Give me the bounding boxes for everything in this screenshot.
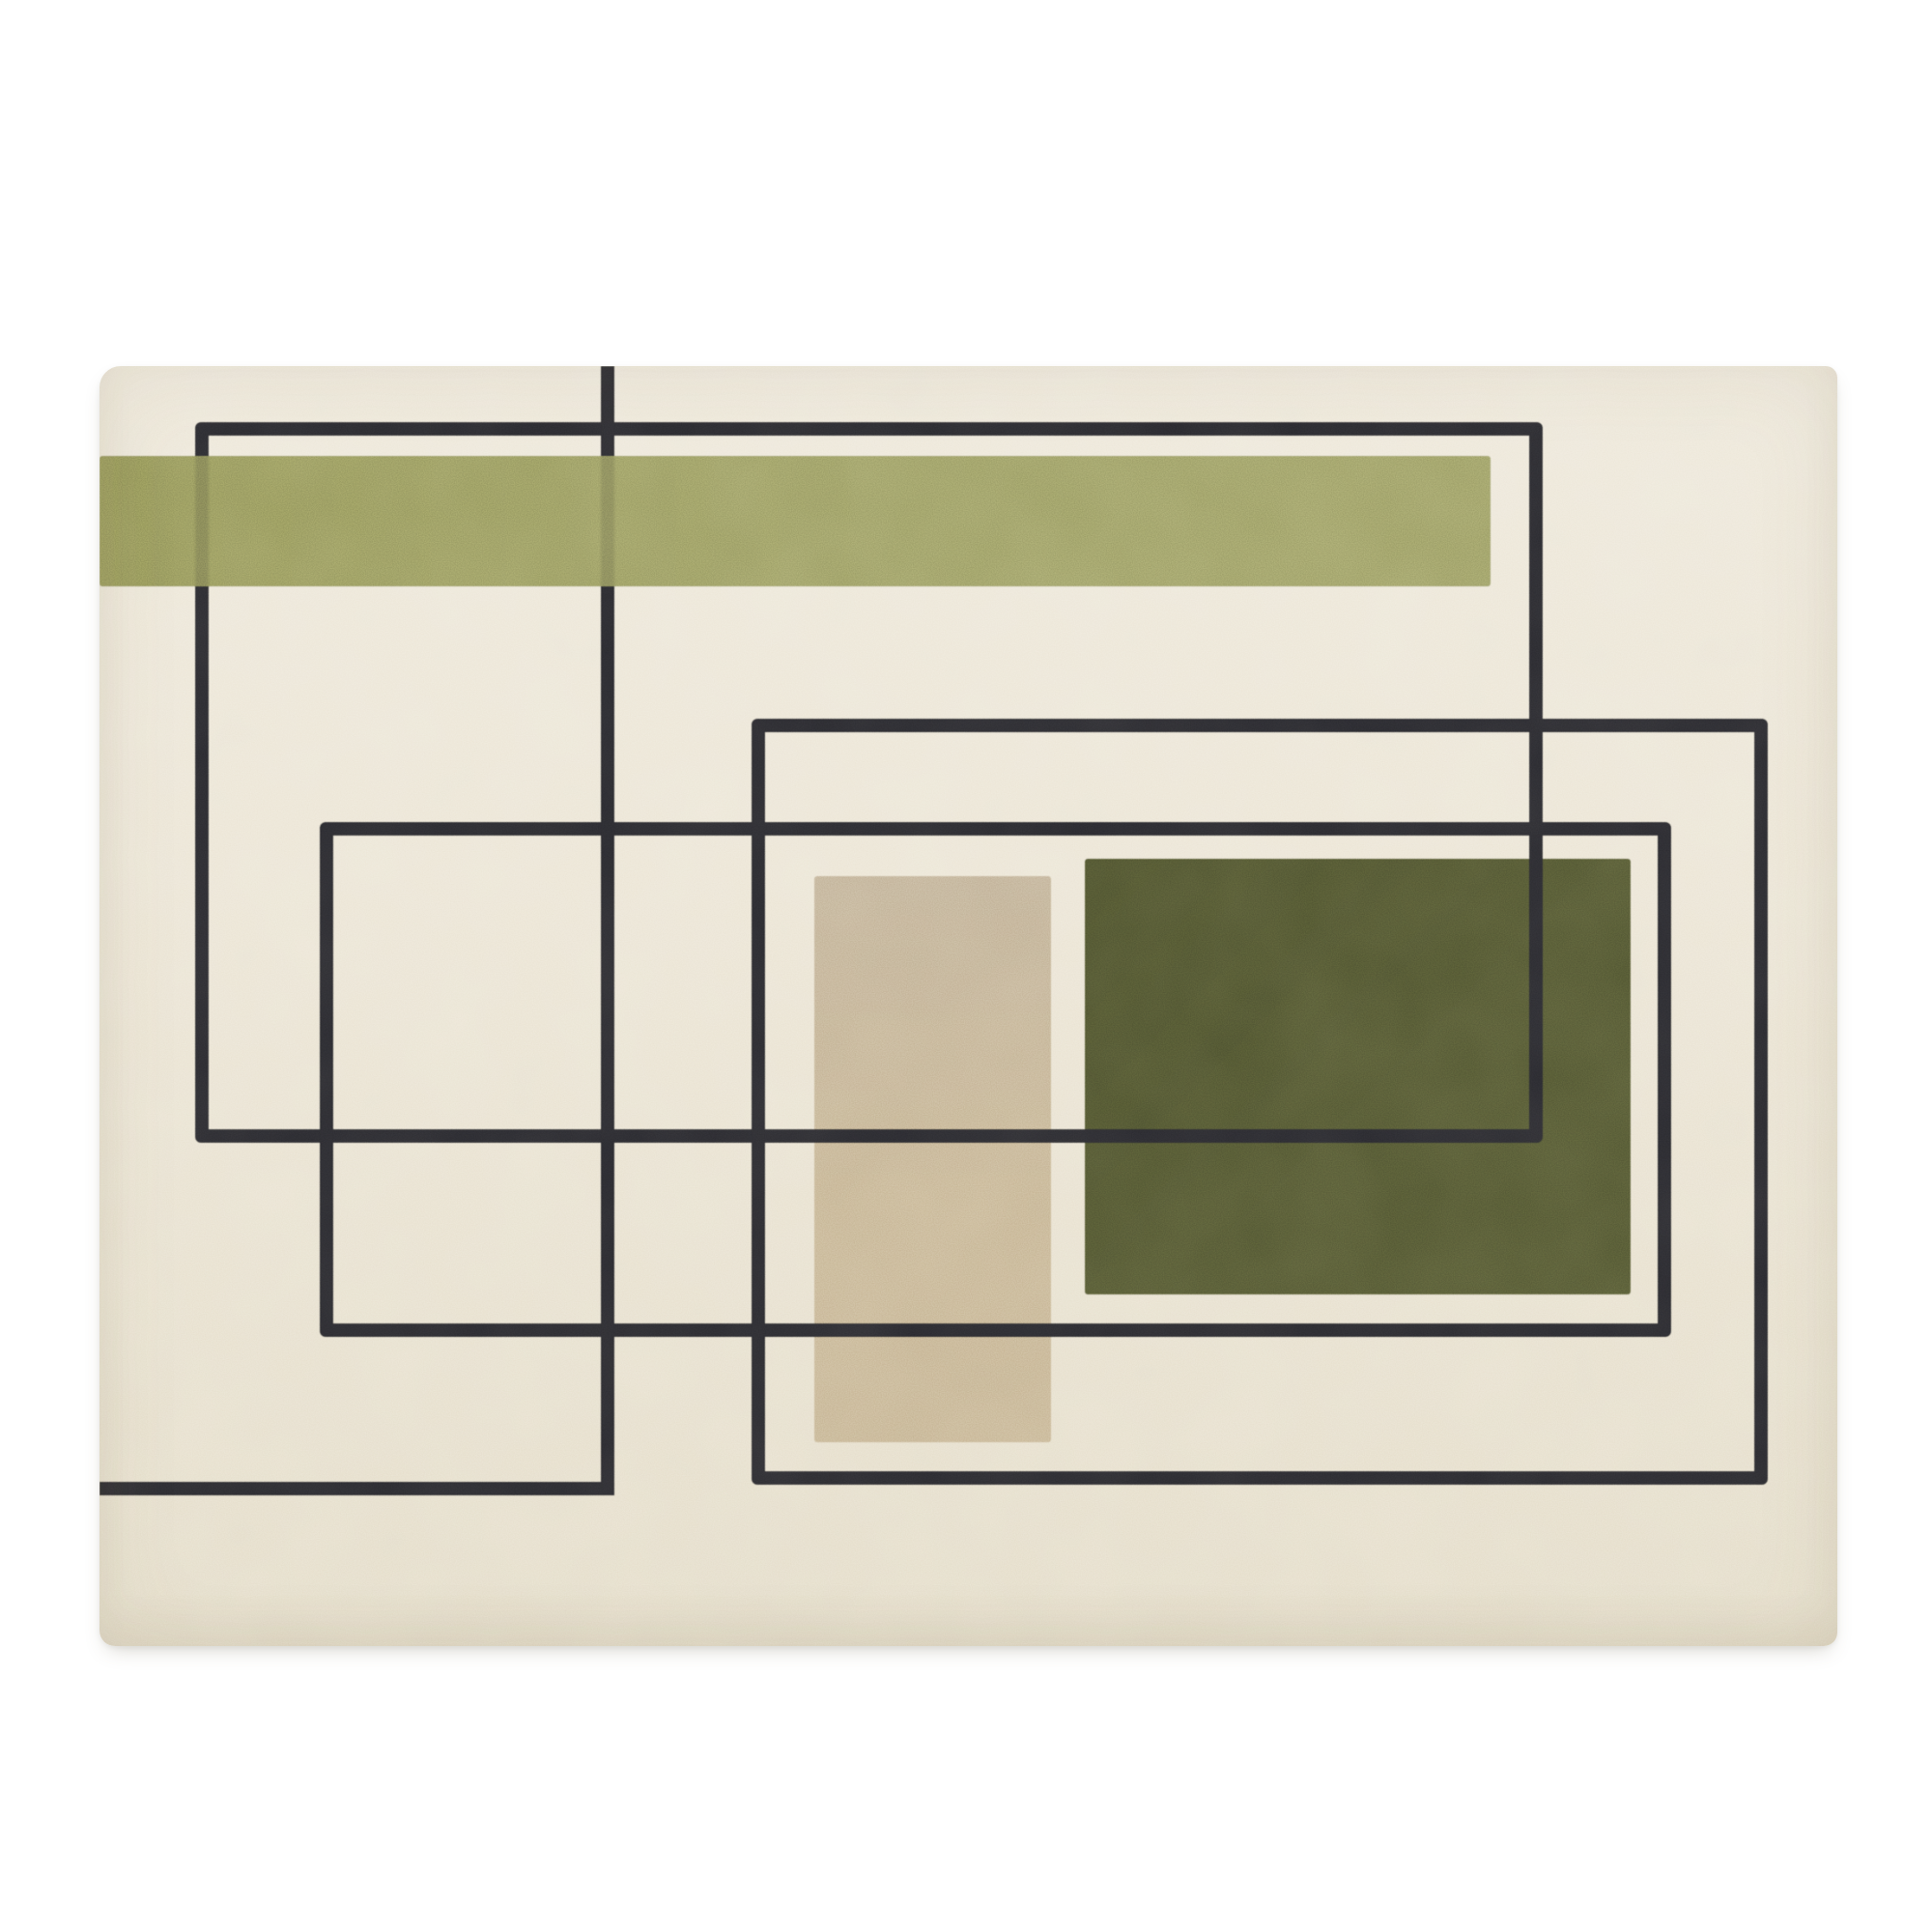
green-bar-ghost-line-mid [601, 456, 614, 586]
rug-green-bar-layer [99, 366, 1837, 1646]
product-photo-canvas [0, 0, 1932, 1932]
sage-green-bar [99, 456, 1491, 586]
rug-photo [99, 366, 1837, 1646]
green-bar-ghost-line-left [195, 456, 209, 586]
